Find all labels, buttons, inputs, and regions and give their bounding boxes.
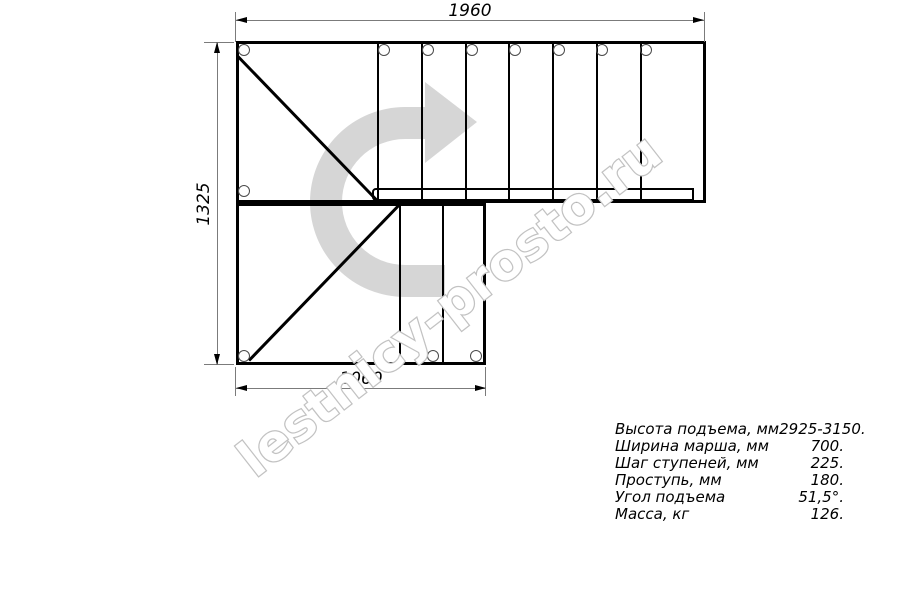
dimension-arrow-icon: [693, 17, 704, 23]
spec-row: Проступь, мм 180.: [615, 472, 844, 489]
dimension-arrow-icon: [475, 385, 486, 391]
spec-label: Масса, кг: [615, 506, 689, 523]
step-divider: [465, 42, 467, 202]
spec-label: Угол подъема: [615, 489, 725, 506]
spec-row: Масса, кг 126.: [615, 506, 844, 523]
step-divider: [552, 42, 554, 202]
mount-hole-marker: [553, 44, 565, 56]
spec-row: Ширина марша, мм 700.: [615, 438, 844, 455]
extension-line: [485, 367, 486, 396]
dimension-line: [217, 42, 218, 365]
spec-label: Проступь, мм: [615, 472, 722, 489]
dimension-label-top: 1960: [430, 1, 510, 21]
extension-line: [704, 12, 705, 42]
step-divider: [442, 204, 444, 364]
mount-hole-marker: [238, 185, 250, 197]
dimension-arrow-icon: [214, 42, 220, 53]
mount-hole-marker: [466, 44, 478, 56]
spec-value: 2925-3150.: [779, 421, 866, 438]
mount-hole-marker: [427, 350, 439, 362]
spec-value: 180.: [811, 472, 844, 489]
dimension-label-left: 1325: [194, 164, 214, 244]
step-divider: [377, 42, 379, 202]
spec-row: Угол подъема 51,5°.: [615, 489, 844, 506]
step-divider: [508, 42, 510, 202]
dimension-label-bottom: 1060: [321, 369, 401, 389]
spec-value: 126.: [811, 506, 844, 523]
spec-label: Шаг ступеней, мм: [615, 455, 759, 472]
spec-table: Высота подъема, мм 2925-3150. Ширина мар…: [615, 421, 844, 523]
spec-value: 51,5°.: [798, 489, 844, 506]
dimension-arrow-icon: [214, 354, 220, 365]
mount-hole-marker: [596, 44, 608, 56]
stringer-beam: [372, 188, 694, 201]
spec-row: Шаг ступеней, мм 225.: [615, 455, 844, 472]
mount-hole-marker: [422, 44, 434, 56]
step-divider: [596, 42, 598, 202]
spec-row: Высота подъема, мм 2925-3150.: [615, 421, 844, 438]
mount-hole-marker: [378, 44, 390, 56]
spec-value: 225.: [811, 455, 844, 472]
mount-hole-marker: [640, 44, 652, 56]
spec-label: Ширина марша, мм: [615, 438, 769, 455]
mount-hole-marker: [509, 44, 521, 56]
step-divider: [399, 204, 401, 364]
mount-hole-marker: [470, 350, 482, 362]
mount-hole-marker: [238, 350, 250, 362]
lower-flight-outline: [236, 203, 486, 365]
step-divider: [421, 42, 423, 202]
dimension-arrow-icon: [236, 385, 247, 391]
spec-value: 700.: [811, 438, 844, 455]
spec-label: Высота подъема, мм: [615, 421, 779, 438]
dimension-arrow-icon: [236, 17, 247, 23]
staircase-drawing-canvas: 1960 1325 1060 Высота подъема, мм 2925-3…: [0, 0, 900, 600]
extension-line: [235, 367, 236, 396]
upper-flight-outline: [236, 41, 706, 203]
mount-hole-marker: [238, 44, 250, 56]
step-divider: [640, 42, 642, 202]
